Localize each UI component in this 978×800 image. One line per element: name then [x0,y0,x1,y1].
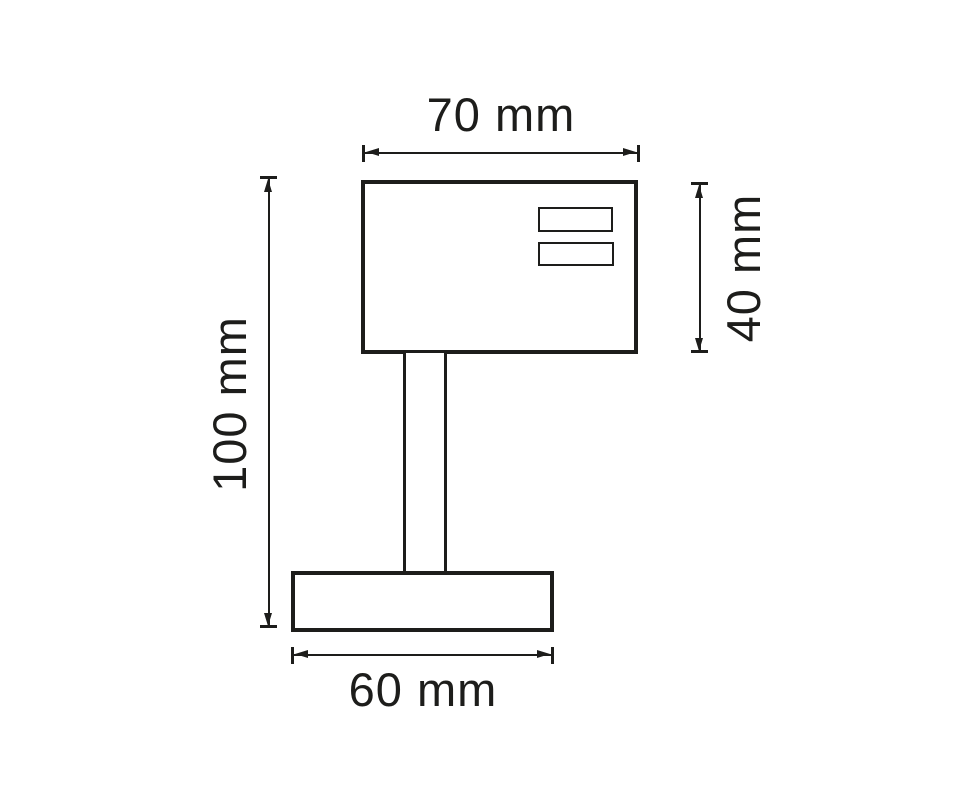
dim-label-right-height: 40 mm [718,158,770,378]
dim-bottom-tick-left [291,647,294,664]
dimension-drawing: 70 mm 40 mm 100 mm 60 mm [0,0,978,800]
dim-label-bottom-width: 60 mm [313,664,533,716]
dim-top-arrowhead-left [366,148,379,156]
dim-right-arrowhead-down [695,338,703,351]
dim-label-left-height: 100 mm [204,254,256,554]
fixture-stem [403,353,447,572]
dim-top-arrowhead-right [623,148,636,156]
fixture-base [291,571,554,632]
head-slot-top [538,207,613,232]
dim-left-arrowhead-down [264,613,272,626]
dim-bottom-arrowhead-right [537,650,550,658]
dim-bottom-line [293,654,552,656]
dim-bottom-tick-right [551,647,554,664]
dim-left-arrowhead-up [264,179,272,192]
dim-label-top-width: 70 mm [391,89,611,141]
dim-bottom-arrowhead-left [295,650,308,658]
dim-top-line [364,152,639,154]
dim-right-arrowhead-up [695,185,703,198]
dim-right-line [699,184,701,352]
dim-top-tick-left [362,145,365,162]
dim-left-line [268,178,270,627]
dim-top-tick-right [637,145,640,162]
head-slot-bottom [538,242,614,266]
